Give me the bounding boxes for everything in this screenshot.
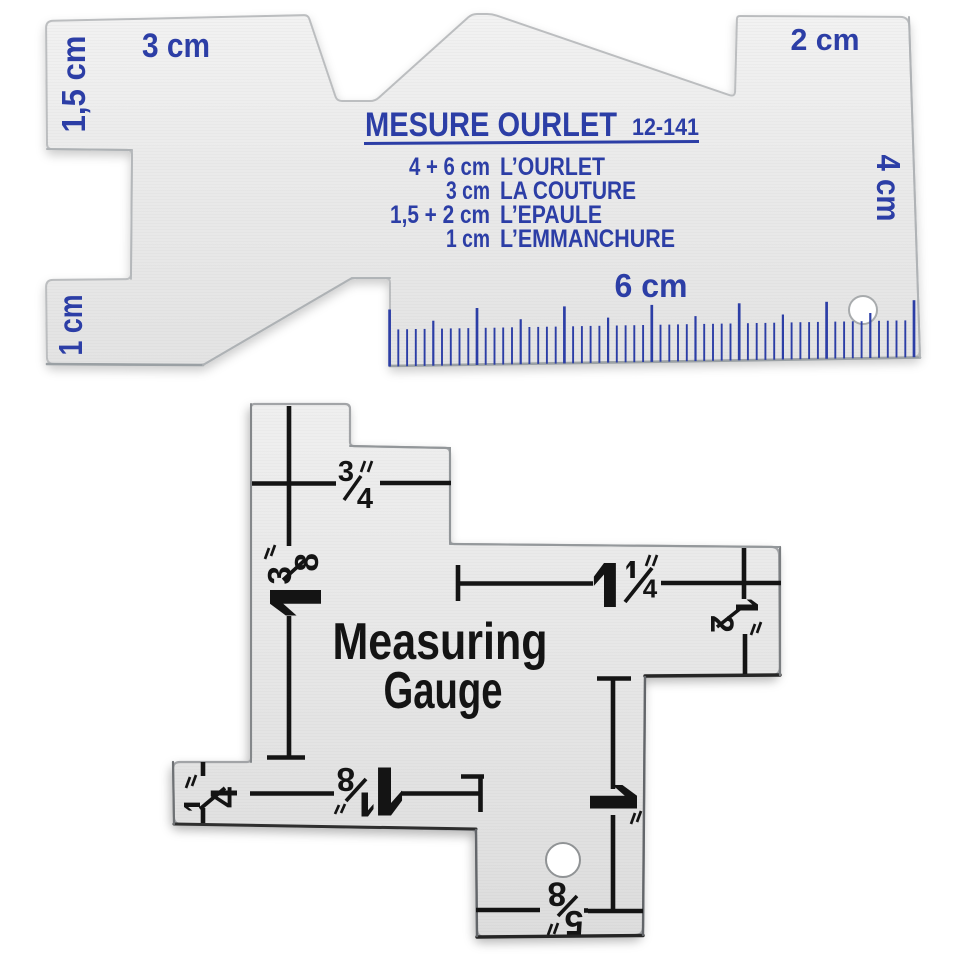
svg-text:4 cm: 4 cm: [870, 155, 907, 222]
svg-text:Gauge: Gauge: [384, 662, 503, 720]
svg-text:3 cm: 3 cm: [142, 27, 210, 65]
svg-text:2 cm: 2 cm: [791, 22, 860, 57]
svg-text:1 cm: 1 cm: [446, 225, 490, 253]
svg-text:6 cm: 6 cm: [615, 267, 688, 304]
svg-text:1 cm: 1 cm: [52, 295, 89, 356]
svg-text:MESURE OURLET: MESURE OURLET: [365, 106, 617, 144]
svg-text:3: 3: [338, 456, 354, 488]
svg-text:1,5 cm: 1,5 cm: [55, 36, 92, 133]
svg-text:12-141: 12-141: [632, 114, 699, 141]
svg-text:4: 4: [357, 483, 373, 515]
svg-text:L’EMMANCHURE: L’EMMANCHURE: [500, 225, 675, 253]
svg-text:8: 8: [548, 875, 567, 913]
